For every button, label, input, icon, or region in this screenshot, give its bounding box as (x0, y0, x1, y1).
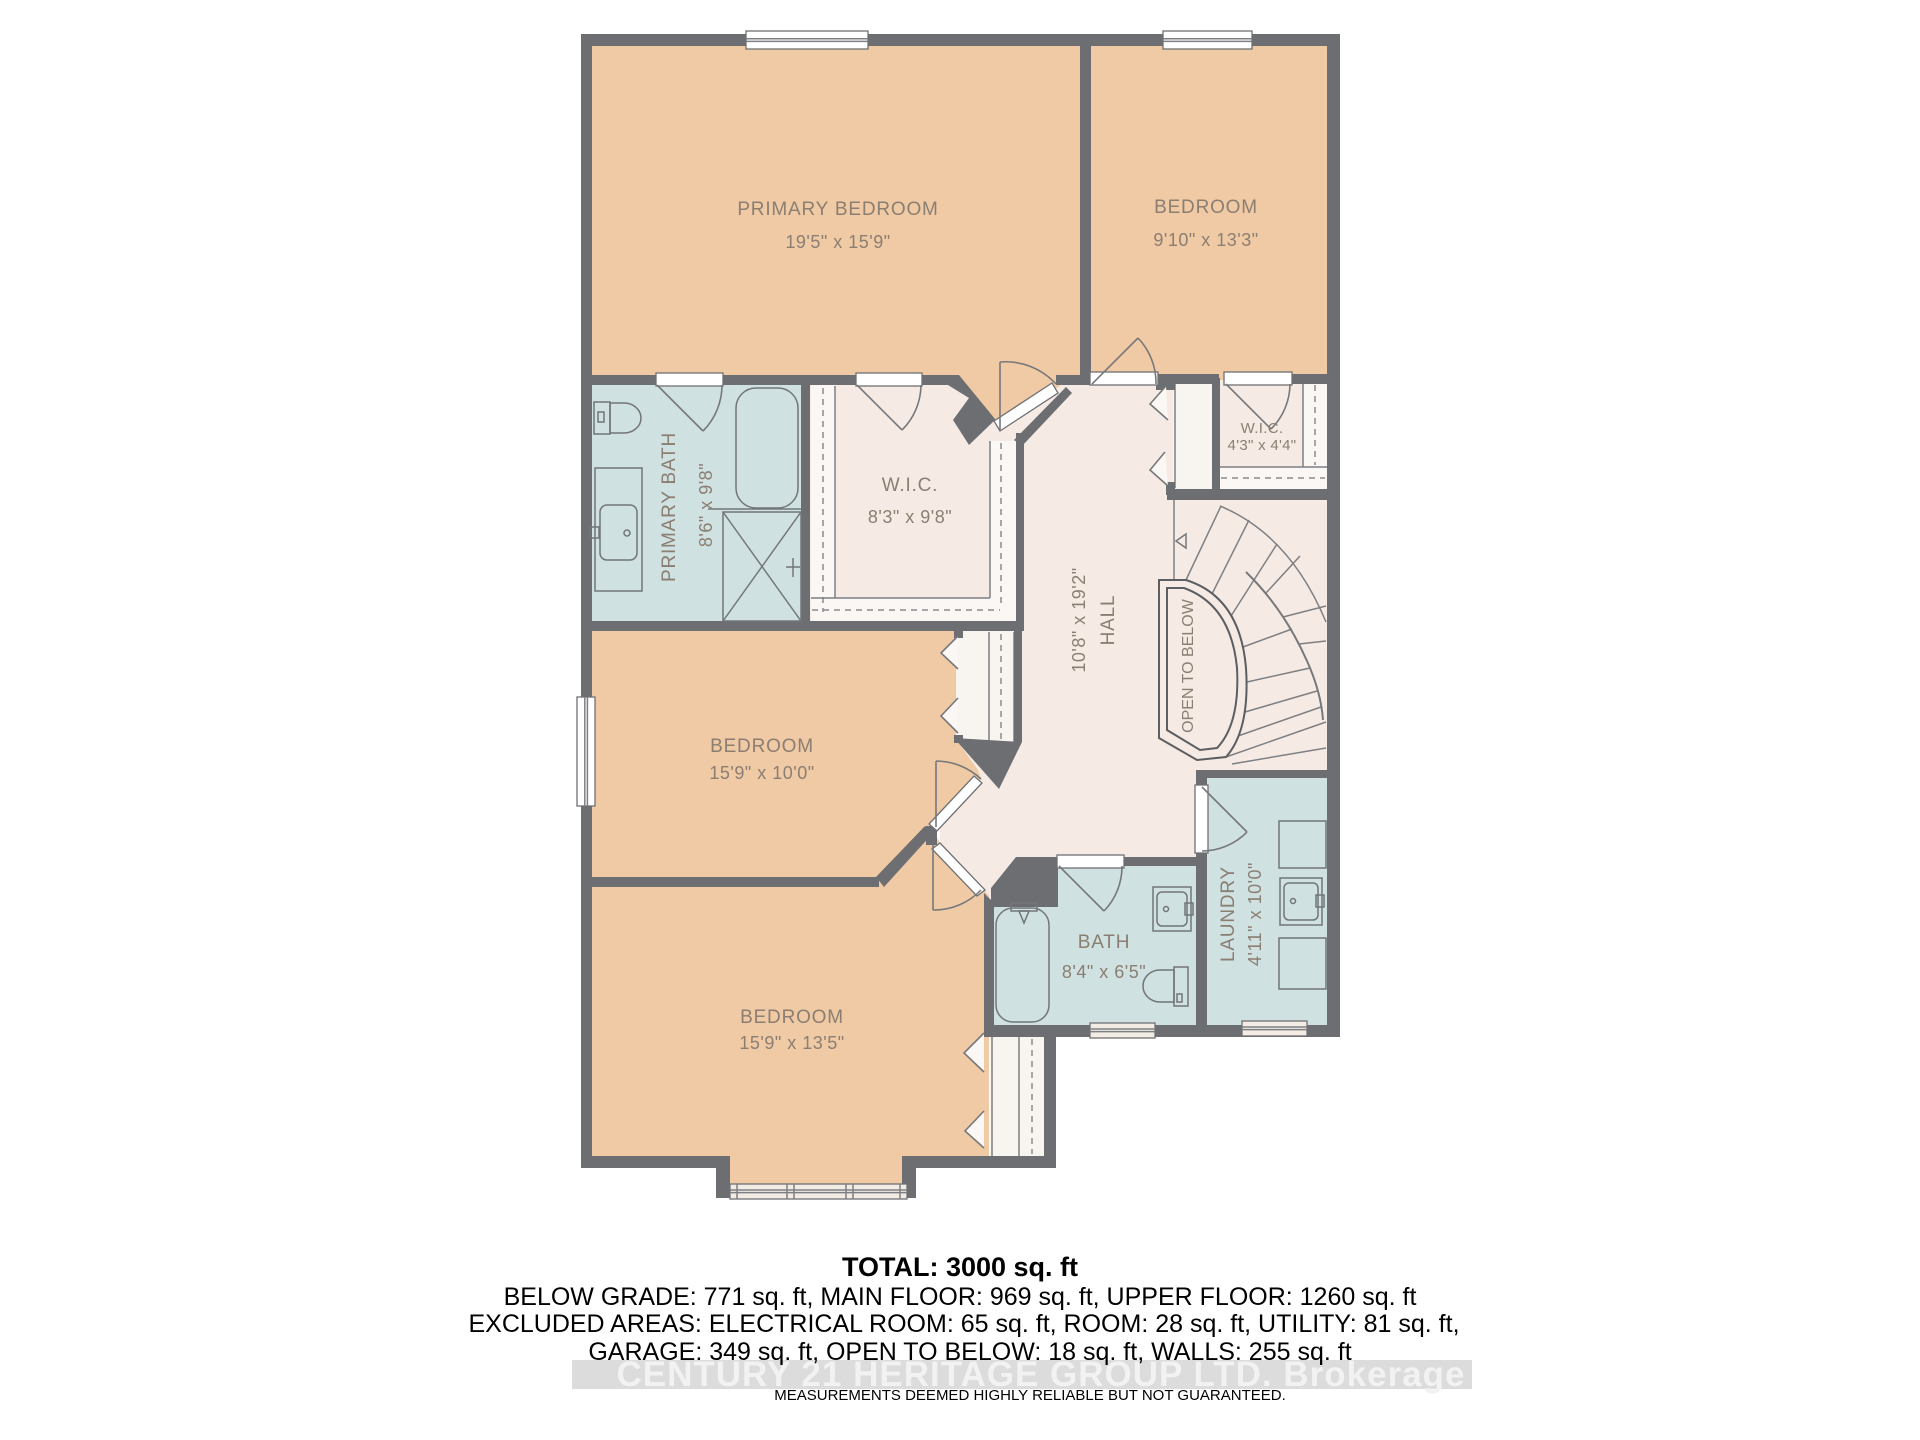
svg-text:MEASUREMENTS DEEMED HIGHLY REL: MEASUREMENTS DEEMED HIGHLY RELIABLE BUT … (774, 1387, 1286, 1404)
svg-text:15'9" x 13'5": 15'9" x 13'5" (739, 1033, 844, 1053)
svg-text:8'4" x 6'5": 8'4" x 6'5" (1062, 962, 1146, 982)
svg-text:PRIMARY BEDROOM: PRIMARY BEDROOM (737, 199, 938, 220)
svg-text:GARAGE: 349 sq. ft, OPEN TO BE: GARAGE: 349 sq. ft, OPEN TO BELOW: 18 sq… (588, 1338, 1351, 1366)
svg-text:BEDROOM: BEDROOM (740, 1007, 844, 1028)
svg-text:9'10" x 13'3": 9'10" x 13'3" (1153, 230, 1258, 250)
svg-text:W.I.C.: W.I.C. (882, 475, 939, 496)
svg-text:EXCLUDED AREAS: ELECTRICAL ROO: EXCLUDED AREAS: ELECTRICAL ROOM: 65 sq. … (468, 1310, 1459, 1338)
svg-text:LAUNDRY: LAUNDRY (1218, 866, 1239, 962)
svg-text:10'8" x 19'2": 10'8" x 19'2" (1069, 567, 1089, 672)
svg-text:4'3" x 4'4": 4'3" x 4'4" (1228, 437, 1297, 454)
svg-text:W.I.C.: W.I.C. (1241, 420, 1284, 437)
svg-text:15'9" x 10'0": 15'9" x 10'0" (709, 763, 814, 783)
svg-text:PRIMARY BATH: PRIMARY BATH (659, 432, 680, 582)
svg-text:BATH: BATH (1078, 932, 1130, 953)
svg-text:8'6" x 9'8": 8'6" x 9'8" (696, 463, 716, 547)
svg-text:BELOW GRADE: 771 sq. ft, MAIN: BELOW GRADE: 771 sq. ft, MAIN FLOOR: 969… (504, 1283, 1417, 1311)
svg-text:HALL: HALL (1098, 595, 1119, 646)
svg-text:19'5" x 15'9": 19'5" x 15'9" (785, 232, 890, 252)
svg-text:8'3" x 9'8": 8'3" x 9'8" (868, 507, 952, 527)
svg-text:TOTAL: 3000 sq. ft: TOTAL: 3000 sq. ft (842, 1252, 1078, 1282)
svg-text:4'11" x 10'0": 4'11" x 10'0" (1245, 862, 1265, 966)
svg-text:BEDROOM: BEDROOM (1154, 197, 1258, 218)
svg-text:BEDROOM: BEDROOM (710, 736, 814, 757)
svg-text:OPEN TO BELOW: OPEN TO BELOW (1180, 598, 1197, 733)
